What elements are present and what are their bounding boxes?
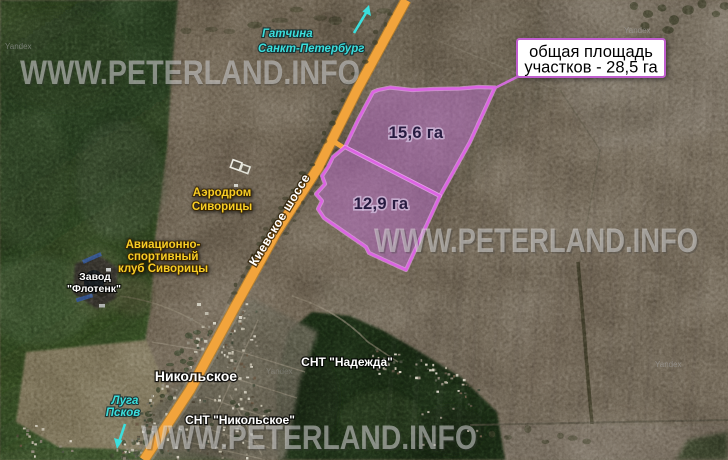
svg-text:Yandex: Yandex [266,367,293,376]
svg-text:Гатчина: Гатчина [262,28,313,40]
svg-text:Луга: Луга [111,395,139,407]
svg-text:Аэродром: Аэродром [193,187,251,199]
svg-text:Yandex: Yandex [655,360,682,369]
svg-text:WWW.PETERLAND.INFO: WWW.PETERLAND.INFO [20,54,360,92]
svg-text:СНТ "Надежда": СНТ "Надежда" [301,355,393,369]
svg-text:12,9 га: 12,9 га [354,195,409,213]
svg-text:15,6 га: 15,6 га [389,124,444,142]
svg-text:клуб Сиворицы: клуб Сиворицы [118,263,208,275]
svg-text:"Флотенк": "Флотенк" [67,283,121,295]
svg-text:СНТ "Никольское": СНТ "Никольское" [185,413,295,427]
svg-text:Псков: Псков [106,407,141,419]
svg-text:Никольское: Никольское [155,368,237,384]
svg-text:WWW.PETERLAND.INFO: WWW.PETERLAND.INFO [374,222,698,260]
svg-text:Сиворицы: Сиворицы [192,201,252,213]
svg-text:Yandex: Yandex [624,26,651,35]
svg-text:спортивный: спортивный [128,251,199,263]
svg-text:участков - 28,5 га: участков - 28,5 га [524,59,658,77]
svg-text:Yandex: Yandex [5,42,32,51]
svg-text:Санкт-Петербург: Санкт-Петербург [258,43,364,55]
svg-text:Завод: Завод [79,271,111,283]
svg-text:Авиационно-: Авиационно- [126,239,201,251]
